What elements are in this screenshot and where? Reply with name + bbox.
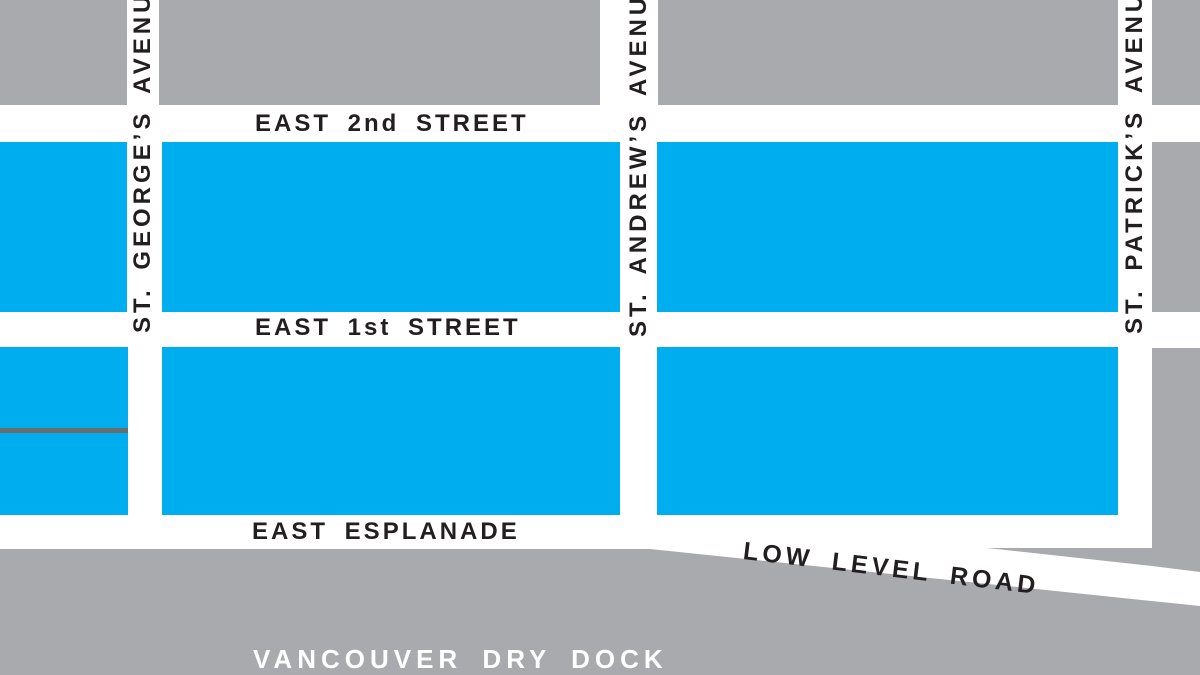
street-map: EAST 2nd STREET EAST 1st STREET EAST ESP…: [0, 0, 1200, 675]
street-label-east-1st: EAST 1st STREET: [255, 314, 521, 342]
street-label-st-patricks-avenue: ST. PATRICK’S AVENUE: [1118, 0, 1152, 334]
street-label-st-andrews-avenue: ST. ANDREW’S AVENUE: [620, 0, 657, 337]
city-block-gray-slanted: [1152, 348, 1200, 572]
area-label-vancouver-dry-dock: VANCOUVER DRY DOCK: [253, 644, 668, 675]
street-label-st-georges-avenue: ST. GEORGE’S AVENUE: [127, 0, 159, 333]
road-fork-wedge: [987, 548, 1152, 566]
street-label-east-2nd: EAST 2nd STREET: [255, 110, 529, 138]
street-label-east-esplanade: EAST ESPLANADE: [252, 518, 520, 546]
